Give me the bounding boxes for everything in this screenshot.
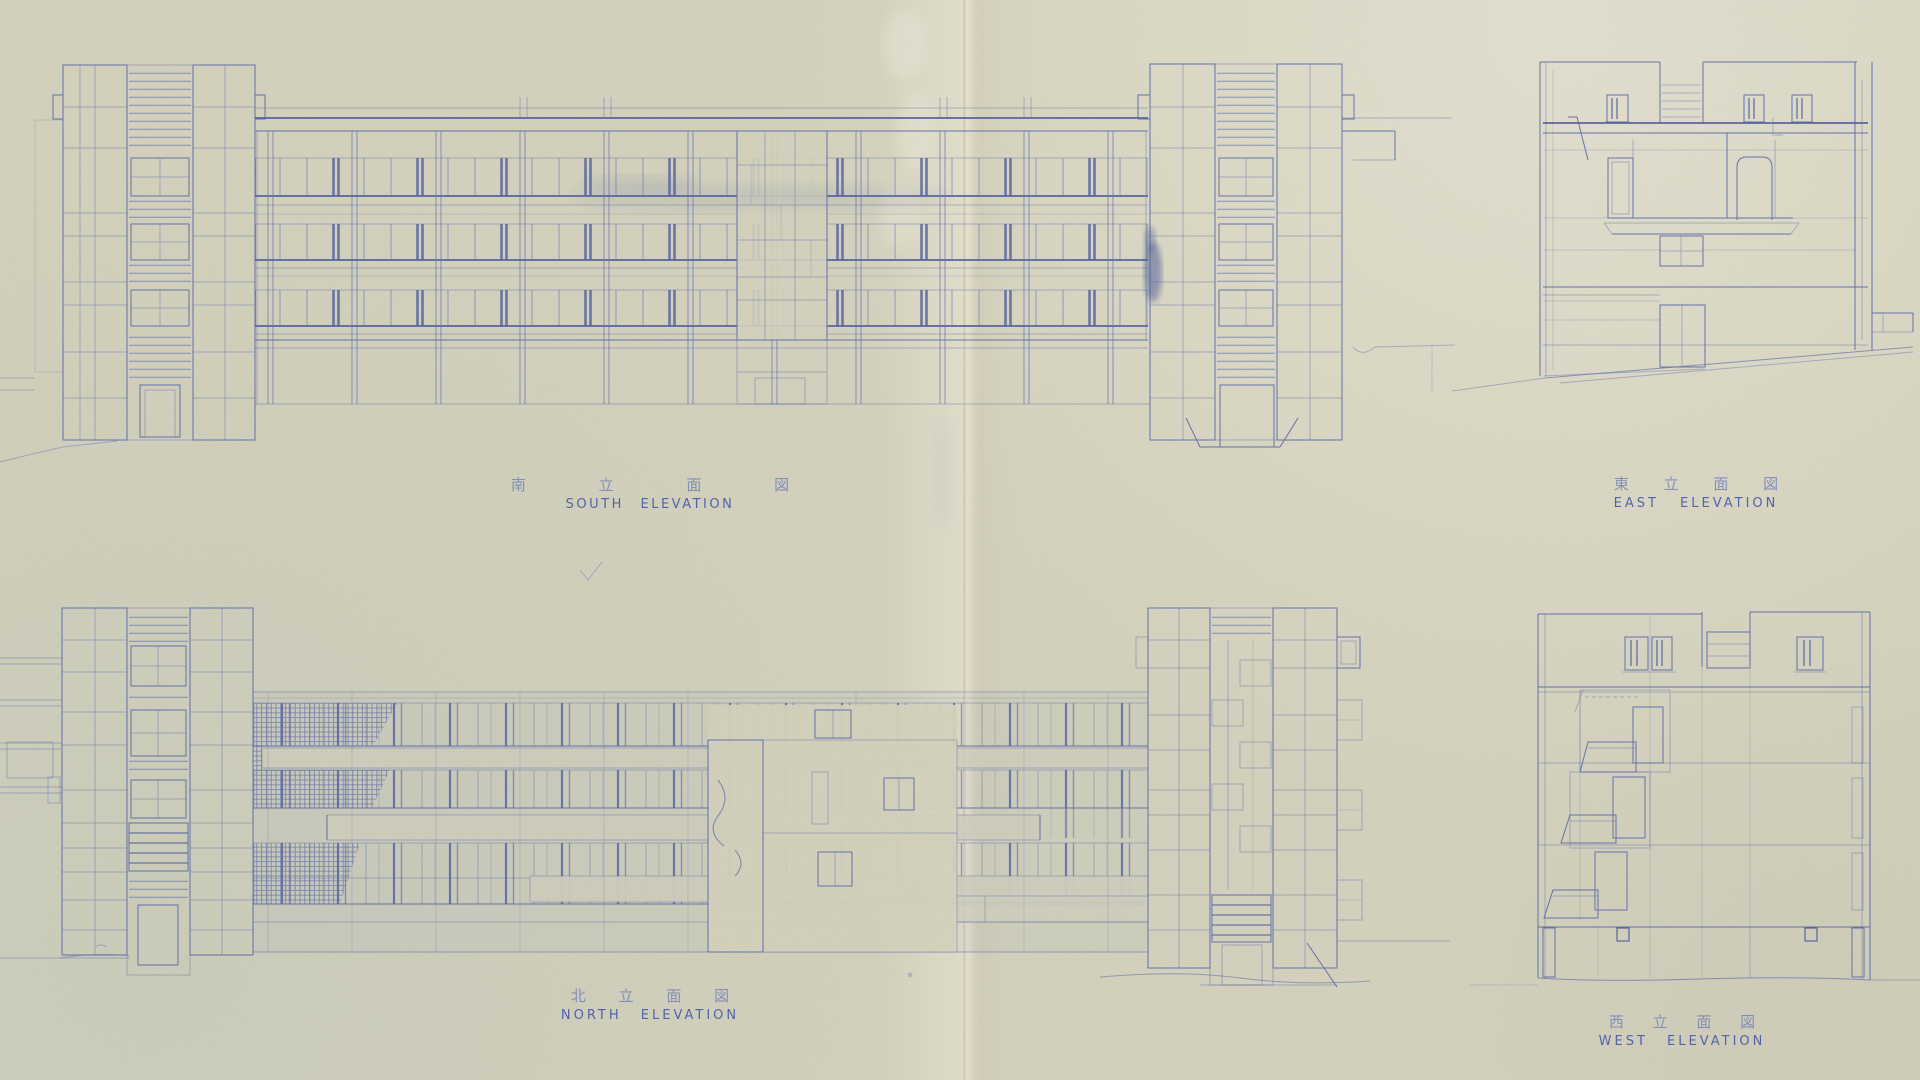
blueprint-sheet: .ln{stroke:#5565a6;fill:none;stroke-widt…: [0, 0, 1920, 1080]
paper-grain: [0, 0, 1920, 1080]
blueprint-canvas: .ln{stroke:#5565a6;fill:none;stroke-widt…: [0, 0, 1920, 1080]
